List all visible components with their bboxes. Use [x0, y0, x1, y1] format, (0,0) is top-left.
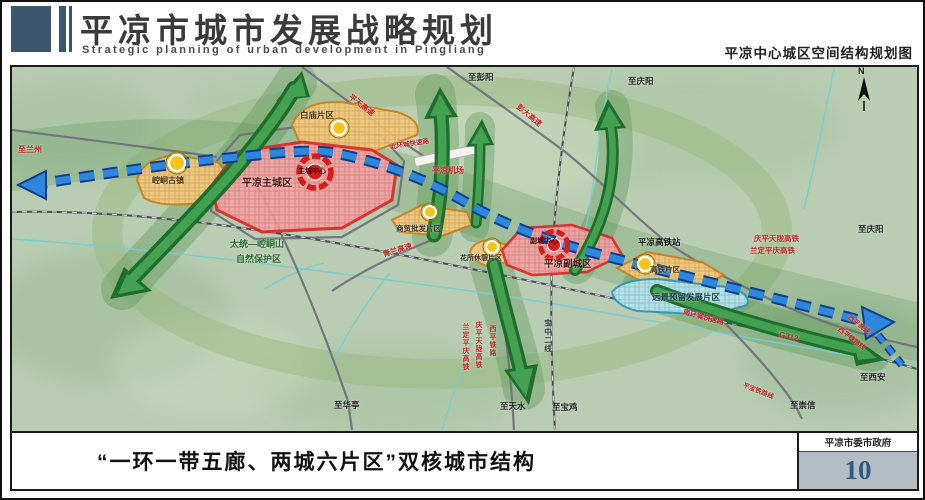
map-label-landingpingqing-hsr-vertical: 兰定平庆高铁: [462, 323, 469, 371]
map-label-pingliang-airport: 平凉机场: [432, 167, 464, 175]
map-label-xiping-railway-vertical: 西平铁路: [489, 325, 496, 357]
sheet-frame: 至兰州 白庙片区 平天高速 至彭阳 彭大高速 至庆阳 平凉主城区 主城中心 北环…: [10, 65, 919, 491]
map-label-sub-city-center: 副城中心: [530, 238, 558, 245]
map-label-nature-reserve-1: 太统—崆峒山: [230, 240, 284, 249]
map-label-to-huating: 至华亭: [334, 401, 360, 410]
map-label-kongtong-town: 崆峒古镇: [152, 177, 184, 185]
map-area[interactable]: 至兰州 白庙片区 平天高速 至彭阳 彭大高速 至庆阳 平凉主城区 主城中心 北环…: [12, 67, 917, 433]
footer: “一环一带五廊、两城六片区”双核城市结构 平凉市委市政府 10: [12, 433, 917, 489]
map-label-to-pengyang: 至彭阳: [468, 73, 494, 82]
map-label-to-qingyang-north: 至庆阳: [628, 77, 654, 86]
map-label-sub-city: 平凉副城区: [544, 260, 592, 270]
map-label-qingpingtianlong-hsr-vertical: 庆平天陇高铁: [475, 321, 482, 369]
compass-n-label: N: [858, 67, 865, 76]
page-number: 10: [799, 452, 917, 489]
page-number-cell: 平凉市委市政府 10: [797, 433, 917, 489]
divider-bar-thin: [69, 6, 72, 52]
map-label-nature-reserve-2: 自然保护区: [236, 255, 281, 264]
page-subtitle: Strategic planning of urban development …: [82, 44, 486, 56]
map-label-baozhong-line2: 宝中二线: [544, 319, 552, 353]
map-label-main-city: 平凉主城区: [242, 179, 292, 189]
map-label-to-xian: 至西安: [860, 373, 886, 382]
map-label-to-qingyang-east: 至庆阳: [858, 225, 884, 234]
map-label-huasuo-leisure-district: 花所休憩片区: [460, 255, 502, 262]
compass-icon: [858, 77, 870, 111]
agency-label: 平凉市委市政府: [799, 433, 917, 452]
map-label-to-chongxin: 至崇信: [790, 401, 816, 410]
map-label-hsr-station: 平凉高铁站: [638, 238, 681, 247]
map-label-to-lanzhou: 至兰州: [18, 146, 42, 154]
header: 平凉市城市发展战略规划 Strategic planning of urban …: [2, 2, 923, 65]
map-title: 平凉中心城区空间结构规划图: [725, 42, 914, 62]
map-label-to-tianshui: 至天水: [500, 402, 526, 411]
map-label-commerce-district: 商贸批发片区: [396, 225, 441, 233]
map-label-landingpingqing-hsr: 兰定平庆高铁: [750, 247, 795, 255]
map-label-main-city-center: 主城中心: [298, 168, 326, 175]
map-label-reserved-development-district: 远景预留发展片区: [652, 293, 720, 302]
divider-bar: [59, 6, 66, 52]
map-label-qingpingtianlong-hsr: 庆平天陇高铁: [754, 235, 799, 243]
map-label-hsr-district: 高铁片区: [650, 266, 680, 274]
planning-sheet: 平凉市城市发展战略规划 Strategic planning of urban …: [0, 0, 925, 500]
structure-caption: “一环一带五廊、两城六片区”双核城市结构: [12, 433, 797, 489]
map-label-baimiao-district: 白庙片区: [300, 111, 334, 120]
map-label-to-baoji: 至宝鸡: [552, 403, 578, 412]
logo-square: [11, 6, 51, 52]
